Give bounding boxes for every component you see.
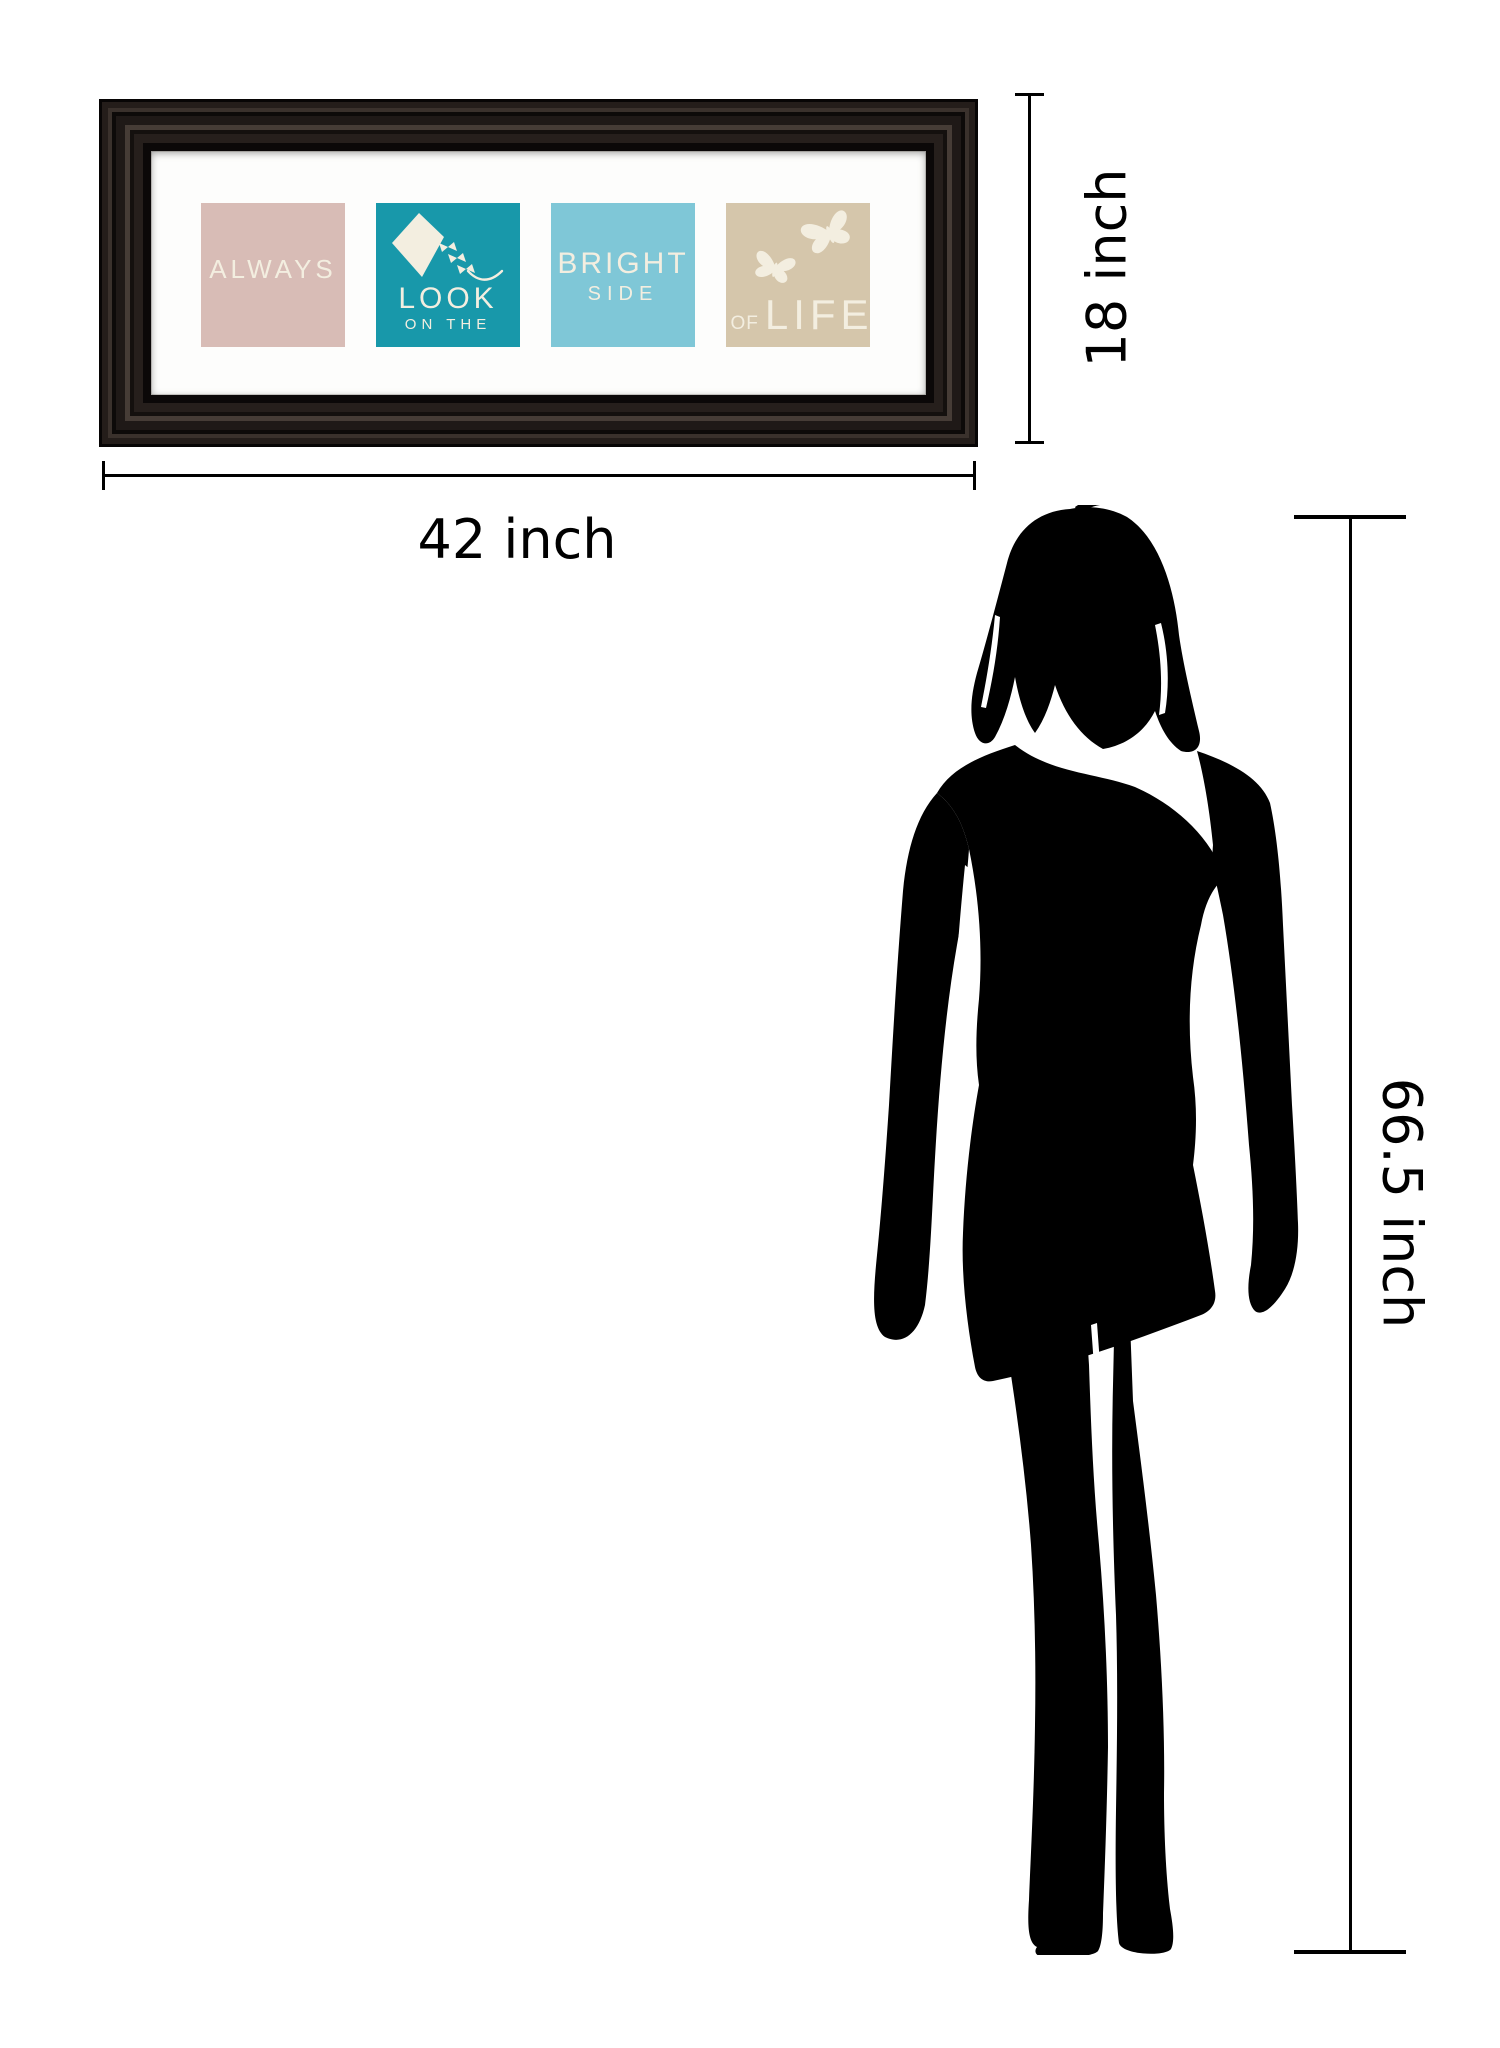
product-dimension-diagram: ALWAYS LOOK ON THE <box>0 0 1500 2048</box>
figure-dimension-line <box>1349 516 1352 1953</box>
width-dimension-line <box>103 474 975 477</box>
height-dimension-line <box>1028 93 1031 444</box>
figure-dimension-bar-bottom <box>1294 1950 1406 1954</box>
picture-frame: ALWAYS LOOK ON THE <box>99 99 978 447</box>
panel-onthe-text: ON THE <box>376 315 520 335</box>
height-dimension-tick-top <box>1015 93 1044 96</box>
panel-always: ALWAYS <box>201 203 345 347</box>
figure-dimension-bar-top <box>1294 515 1406 519</box>
woman-silhouette <box>865 505 1300 1955</box>
panel-look-text: LOOK <box>376 283 520 315</box>
panel-side-text: SIDE <box>588 281 659 307</box>
panel-of-text: OF <box>730 313 758 335</box>
height-dimension-label: 18 inch <box>1076 168 1139 367</box>
frame-mat: ALWAYS LOOK ON THE <box>151 151 926 395</box>
figure-dimension-label: 66.5 inch <box>1371 1078 1434 1329</box>
panel-bright-text: BRIGHT <box>557 247 688 281</box>
panel-of-life: OF LIFE <box>726 203 870 347</box>
width-dimension-label: 42 inch <box>417 508 616 571</box>
width-dimension-tick-left <box>102 461 105 490</box>
panel-row: ALWAYS LOOK ON THE <box>201 203 870 347</box>
panel-bright-side: BRIGHT SIDE <box>551 203 695 347</box>
height-dimension-tick-bottom <box>1015 441 1044 444</box>
panel-life-text: LIFE <box>765 291 870 339</box>
panel-look-on-the: LOOK ON THE <box>376 203 520 347</box>
width-dimension-tick-right <box>973 461 976 490</box>
panel-always-text: ALWAYS <box>209 254 337 285</box>
